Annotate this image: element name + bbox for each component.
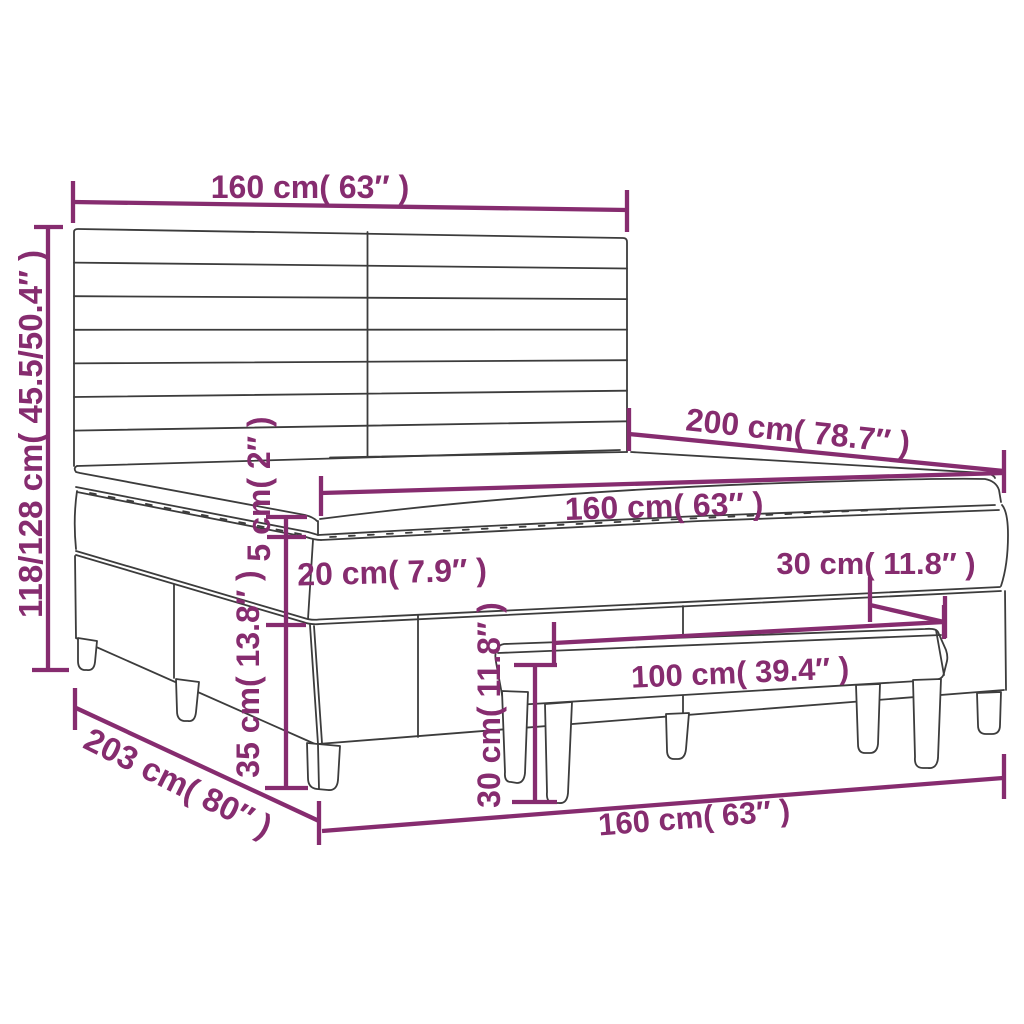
svg-text:160 cm( 63″ ): 160 cm( 63″ ) bbox=[564, 485, 764, 527]
svg-text:5 cm( 2″ ): 5 cm( 2″ ) bbox=[241, 416, 277, 561]
svg-text:118/128 cm( 45.5/50.4″ ): 118/128 cm( 45.5/50.4″ ) bbox=[12, 250, 49, 618]
svg-text:35 cm( 13.8″ ): 35 cm( 13.8″ ) bbox=[230, 570, 266, 777]
svg-text:30 cm( 11.8″ ): 30 cm( 11.8″ ) bbox=[776, 546, 975, 581]
svg-text:20 cm( 7.9″ ): 20 cm( 7.9″ ) bbox=[297, 552, 488, 593]
svg-text:30 cm( 11.8″ ): 30 cm( 11.8″ ) bbox=[471, 602, 507, 808]
svg-text:160 cm( 63″ ): 160 cm( 63″ ) bbox=[211, 169, 410, 205]
